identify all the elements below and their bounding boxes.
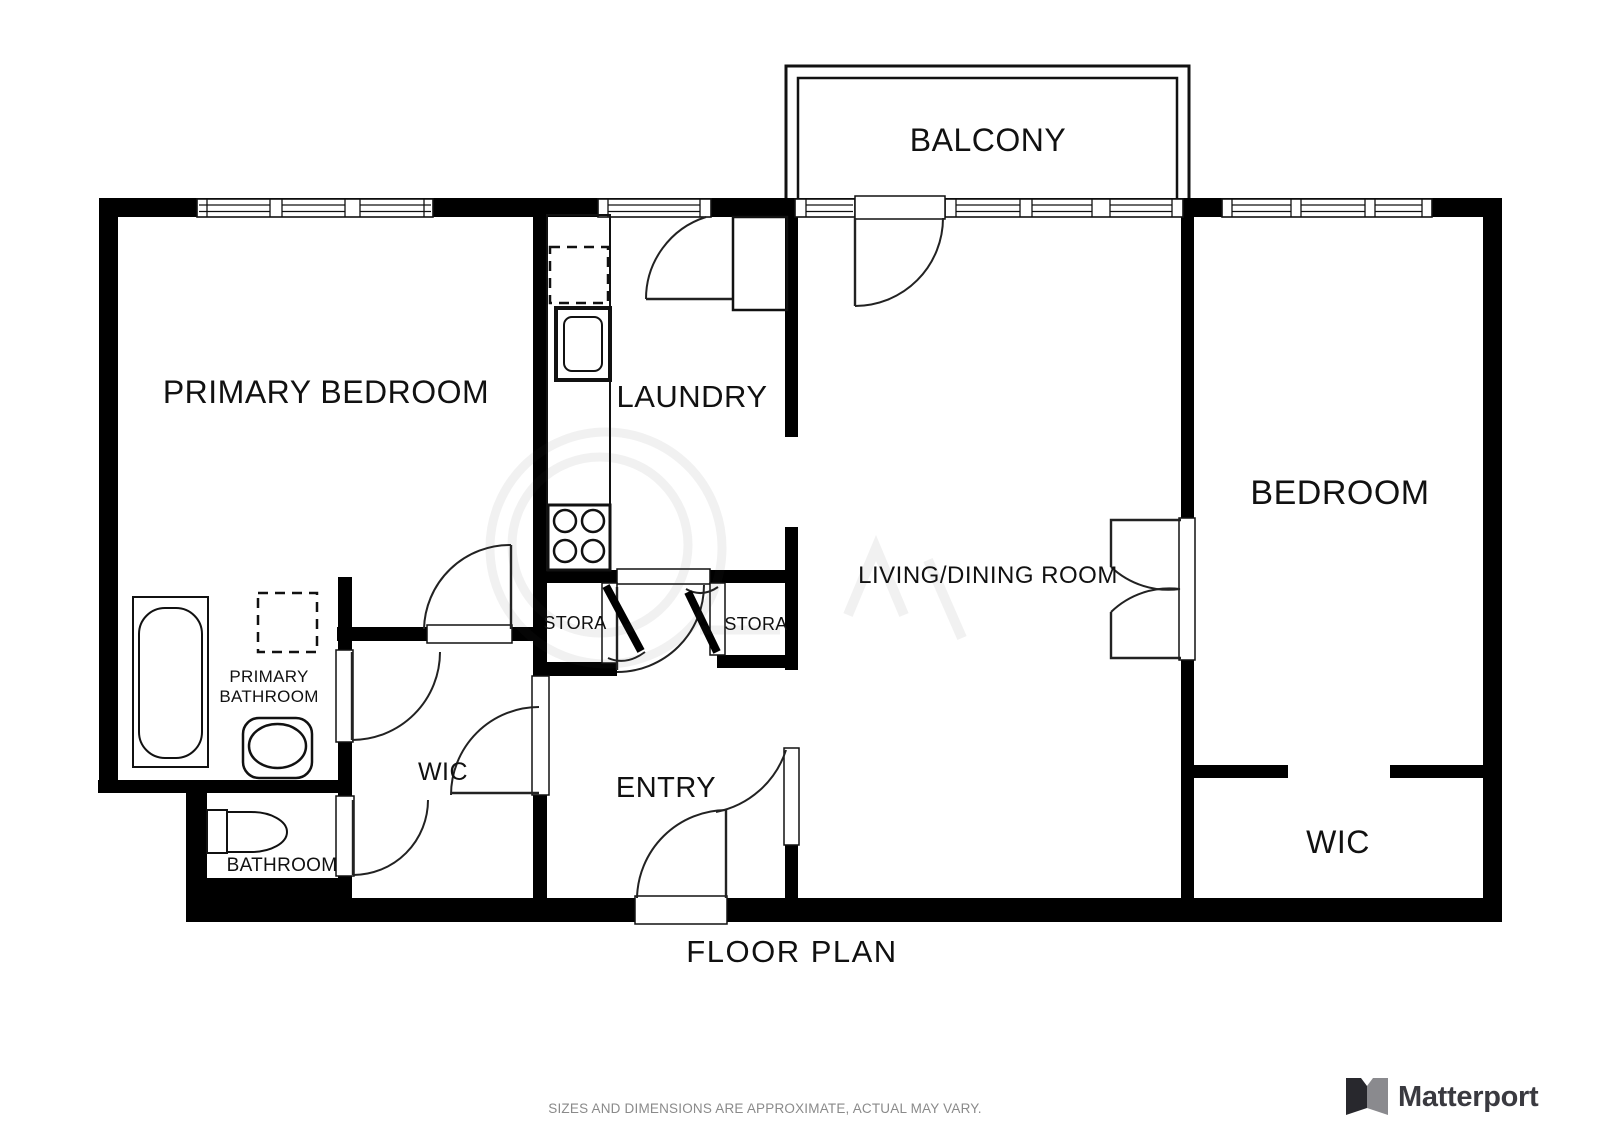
door-swing-arc	[855, 218, 943, 306]
room-label-bedroom: BEDROOM	[1250, 474, 1429, 512]
wall-segment	[338, 742, 352, 798]
room-label-primary-bedroom: PRIMARY BEDROOM	[163, 374, 489, 410]
matterport-m-icon	[1346, 1078, 1388, 1115]
wall-segment	[338, 874, 352, 898]
wall-segment	[1483, 198, 1502, 922]
french-door-arc	[1111, 567, 1180, 590]
window	[795, 199, 1183, 217]
appliance-dashed-outline	[550, 247, 608, 303]
wall-segment	[186, 898, 1502, 922]
room-label-storage-left: STORA	[543, 613, 606, 633]
door-swing-arc	[352, 652, 440, 740]
wall-segment	[1181, 217, 1194, 520]
toilet	[243, 718, 312, 778]
room-label-living-dining: LIVING/DINING ROOM	[858, 562, 1118, 589]
door-threshold	[427, 625, 512, 643]
walls-layer	[98, 198, 1502, 922]
door-threshold	[532, 676, 549, 795]
door-threshold	[855, 196, 945, 219]
room-label-balcony: BALCONY	[910, 122, 1066, 158]
appliance-dashed-outline	[258, 593, 317, 652]
doors-layer	[336, 196, 1195, 924]
door-threshold	[336, 650, 353, 742]
wall-segment	[1194, 765, 1288, 778]
toilet	[207, 810, 287, 853]
french-door-leaf	[1111, 520, 1181, 567]
kitchen-counter	[547, 215, 610, 570]
wall-segment	[785, 845, 798, 898]
door-swing-arc	[353, 800, 428, 875]
hall-closet	[733, 217, 787, 310]
matterport-logo: Matterport	[1346, 1078, 1539, 1115]
room-label-entry: ENTRY	[616, 772, 716, 804]
wall-segment	[186, 878, 352, 898]
floor-plan-canvas: BALCONY PRIMARY BEDROOM LAUNDRY LIVING/D…	[0, 0, 1600, 1131]
door-threshold	[336, 796, 354, 876]
room-label-bathroom: BATHROOM	[227, 855, 338, 876]
room-label-primary-bathroom-line2: BATHROOM	[219, 687, 318, 706]
wall-segment	[533, 795, 547, 898]
room-label-laundry: LAUNDRY	[616, 379, 767, 414]
door-swing-arc	[646, 217, 706, 299]
wall-segment	[1181, 658, 1194, 898]
door-swing-arc	[637, 810, 726, 898]
washer	[556, 308, 610, 380]
matterport-m-icon-dark	[1346, 1078, 1367, 1115]
stove	[548, 505, 610, 570]
matterport-wordmark: Matterport	[1398, 1081, 1539, 1113]
room-label-wic-left: WIC	[418, 758, 468, 786]
french-door-arc	[1111, 588, 1180, 612]
windows-layer	[197, 199, 1432, 217]
floor-plan-title: FLOOR PLAN	[686, 934, 897, 969]
french-door-leaf	[1111, 612, 1181, 658]
disclaimer-text: SIZES AND DIMENSIONS ARE APPROXIMATE, AC…	[548, 1101, 981, 1116]
wall-segment	[98, 780, 352, 793]
matterport-m-icon-gray	[1367, 1078, 1388, 1115]
wall-segment	[1390, 765, 1483, 778]
room-label-primary-bathroom-line1: PRIMARY	[229, 667, 308, 686]
window	[197, 199, 433, 217]
bathtub	[133, 597, 208, 767]
room-label-storage-right: STORA	[724, 614, 787, 634]
door-swing-arc	[716, 750, 786, 812]
door-threshold	[635, 896, 727, 924]
wall-segment	[785, 527, 798, 670]
wall-segment	[337, 627, 427, 641]
window	[1222, 199, 1432, 217]
door-threshold	[617, 569, 710, 584]
wall-segment	[99, 198, 118, 780]
window	[598, 199, 711, 217]
door-threshold	[1179, 518, 1195, 660]
door-threshold	[784, 748, 799, 845]
room-label-wic-right: WIC	[1306, 824, 1370, 860]
floor-plan-page: BALCONY PRIMARY BEDROOM LAUNDRY LIVING/D…	[0, 0, 1600, 1131]
wall-segment	[533, 570, 617, 583]
